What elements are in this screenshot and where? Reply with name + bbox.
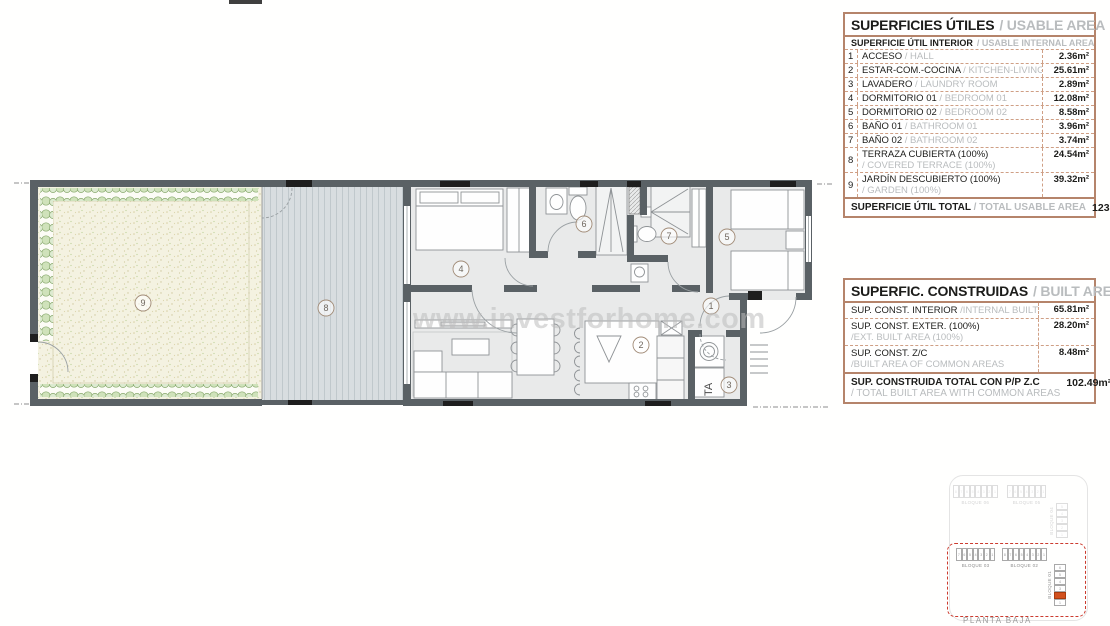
block-01: BLOQUE 01 654321 bbox=[1047, 564, 1066, 606]
svg-text:8: 8 bbox=[323, 303, 328, 313]
room-badge-kitchen: 2 bbox=[633, 337, 649, 353]
closet bbox=[692, 189, 706, 247]
unit-cell: 4 bbox=[1056, 510, 1068, 517]
unit-cell: 1 bbox=[1054, 599, 1066, 606]
usable-row-8: 8TERRAZA CUBIERTA (100%) / COVERED TERRA… bbox=[845, 148, 1094, 173]
room-badge-bedroom1: 4 bbox=[453, 261, 469, 277]
built-area-table: SUPERFIC. CONSTRUIDAS/ BUILT AREA SUP. C… bbox=[843, 278, 1096, 404]
unit-cell: 3 bbox=[1056, 517, 1068, 524]
garden-area bbox=[38, 187, 262, 399]
bed-single-b bbox=[731, 251, 804, 290]
unit-cell: 4 bbox=[1054, 578, 1066, 585]
svg-text:4: 4 bbox=[458, 264, 463, 274]
svg-text:5: 5 bbox=[724, 232, 729, 242]
room-badge-laundry: 3 bbox=[721, 377, 737, 393]
unit-cell: 1 bbox=[1041, 548, 1047, 561]
room-badge-bedroom2: 5 bbox=[719, 229, 735, 245]
floor-plan: 9 8 4 6 7 5 1 2 3 TA www.investforhome.c… bbox=[0, 0, 840, 430]
block-03: 7654321 BLOQUE 03 bbox=[956, 548, 995, 568]
site-key-plan: 87654321 BLOQUE 06 7654321 BLOQUE 05 BLO… bbox=[945, 473, 1090, 626]
usable-row-2: 2ESTAR-COM.-COCINA / KITCHEN-LIVING25.61… bbox=[845, 64, 1094, 78]
unit-cell: 1 bbox=[992, 485, 998, 498]
usable-rows: 1ACCESO / HALL2.36m²2ESTAR-COM.-COCINA /… bbox=[845, 50, 1094, 197]
room-badge-terrace: 8 bbox=[318, 300, 334, 316]
wardrobe bbox=[507, 188, 531, 252]
kitchen-counter bbox=[657, 336, 684, 400]
svg-text:6: 6 bbox=[581, 219, 586, 229]
built-row-1: SUP. CONST. INTERIOR /INTERNAL BUILT ARE… bbox=[845, 303, 1094, 319]
hedge-left bbox=[40, 201, 53, 341]
usable-row-6: 6BAÑO 01 / BATHROOM 013.96m² bbox=[845, 120, 1094, 134]
floor-level-label: PLANTA BAJA bbox=[963, 616, 1032, 625]
built-row-3: SUP. CONST. Z/C /BUILT AREA OF COMMON AR… bbox=[845, 346, 1094, 372]
block-06-label: BLOQUE 06 bbox=[962, 500, 990, 505]
block-01-units: 654321 bbox=[1054, 564, 1066, 606]
svg-text:3: 3 bbox=[726, 380, 731, 390]
unit-cell: 5 bbox=[1056, 503, 1068, 510]
usable-row-7: 7BAÑO 02 / BATHROOM 023.74m² bbox=[845, 134, 1094, 148]
block-06-units: 87654321 bbox=[953, 485, 998, 498]
block-04: BLOQUE 04 54321 bbox=[1049, 503, 1068, 538]
block-05: 7654321 BLOQUE 05 bbox=[1007, 485, 1046, 505]
built-rows: SUP. CONST. INTERIOR /INTERNAL BUILT ARE… bbox=[845, 303, 1094, 372]
room-badge-bathroom2: 7 bbox=[661, 228, 677, 244]
room-badge-garden: 9 bbox=[135, 295, 151, 311]
block-05-units: 7654321 bbox=[1007, 485, 1046, 498]
bathroom1-sink bbox=[546, 188, 567, 214]
usable-total-row: SUPERFICIE ÚTIL TOTAL / TOTAL USABLE ARE… bbox=[845, 197, 1094, 216]
block-04-label: BLOQUE 04 bbox=[1049, 507, 1054, 535]
block-03-units: 7654321 bbox=[956, 548, 995, 561]
floorplan-page: 9 8 4 6 7 5 1 2 3 TA www.investforhome.c… bbox=[0, 0, 1110, 626]
bed-single-a bbox=[731, 190, 804, 229]
entry-steps bbox=[750, 345, 768, 373]
block-02-label: BLOQUE 02 bbox=[1011, 563, 1039, 568]
hedge-bottom bbox=[40, 384, 258, 397]
hedge-top bbox=[40, 188, 258, 201]
duct-shaft bbox=[629, 187, 640, 214]
unit-cell: 1 bbox=[1041, 485, 1047, 498]
usable-total-value: 123.08m² bbox=[1092, 201, 1110, 214]
bed-double bbox=[416, 189, 503, 250]
built-total-value: 102.49m² bbox=[1066, 376, 1110, 400]
block-04-units: 54321 bbox=[1056, 503, 1068, 538]
room-badge-bathroom1: 6 bbox=[576, 216, 592, 232]
usable-area-title: SUPERFICIES ÚTILES/ USABLE AREA bbox=[845, 14, 1094, 37]
bathroom1-shower bbox=[596, 185, 627, 255]
watermark: www.investforhome.com bbox=[412, 303, 766, 335]
built-total-row: SUP. CONSTRUIDA TOTAL CON P/P Z.C/ TOTAL… bbox=[845, 372, 1094, 402]
built-area-title: SUPERFIC. CONSTRUIDAS/ BUILT AREA bbox=[845, 280, 1094, 303]
bathroom1-toilet bbox=[569, 187, 587, 220]
unit-cell: 3 bbox=[1054, 585, 1066, 592]
usable-row-1: 1ACCESO / HALL2.36m² bbox=[845, 50, 1094, 64]
bathroom2-sink bbox=[631, 264, 648, 282]
usable-internal-subheader: SUPERFICIE ÚTIL INTERIOR/ USABLE INTERNA… bbox=[845, 37, 1094, 50]
block-02-units: 87654321 bbox=[1002, 548, 1047, 561]
built-row-2: SUP. CONST. EXTER. (100%) /EXT. BUILT AR… bbox=[845, 319, 1094, 346]
coffee-table bbox=[452, 339, 489, 355]
appliance-label: TA bbox=[703, 382, 715, 396]
block-06: 87654321 BLOQUE 06 bbox=[953, 485, 998, 505]
usable-row-3: 3LAVADERO / LAUNDRY ROOM2.89m² bbox=[845, 78, 1094, 92]
svg-text:9: 9 bbox=[140, 298, 145, 308]
block-01-label: BLOQUE 01 bbox=[1047, 571, 1052, 599]
unit-cell: 1 bbox=[990, 548, 996, 561]
unit-cell: 2 bbox=[1054, 592, 1066, 599]
terrace-area bbox=[262, 187, 410, 400]
svg-text:7: 7 bbox=[666, 231, 671, 241]
unit-cell: 2 bbox=[1056, 524, 1068, 531]
unit-cell: 5 bbox=[1054, 571, 1066, 578]
nightstand bbox=[786, 231, 804, 249]
usable-row-9: 9JARDÍN DESCUBIERTO (100%) / GARDEN (100… bbox=[845, 173, 1094, 197]
usable-row-4: 4DORMITORIO 01 / BEDROOM 0112.08m² bbox=[845, 92, 1094, 106]
stove bbox=[629, 383, 656, 400]
unit-cell: 1 bbox=[1056, 531, 1068, 538]
svg-text:2: 2 bbox=[638, 340, 643, 350]
block-03-label: BLOQUE 03 bbox=[962, 563, 990, 568]
usable-area-table: SUPERFICIES ÚTILES/ USABLE AREA SUPERFIC… bbox=[843, 12, 1096, 218]
usable-row-5: 5DORMITORIO 02 / BEDROOM 028.58m² bbox=[845, 106, 1094, 120]
block-02: 87654321 BLOQUE 02 bbox=[1002, 548, 1047, 568]
block-05-label: BLOQUE 05 bbox=[1013, 500, 1041, 505]
unit-cell: 6 bbox=[1054, 564, 1066, 571]
